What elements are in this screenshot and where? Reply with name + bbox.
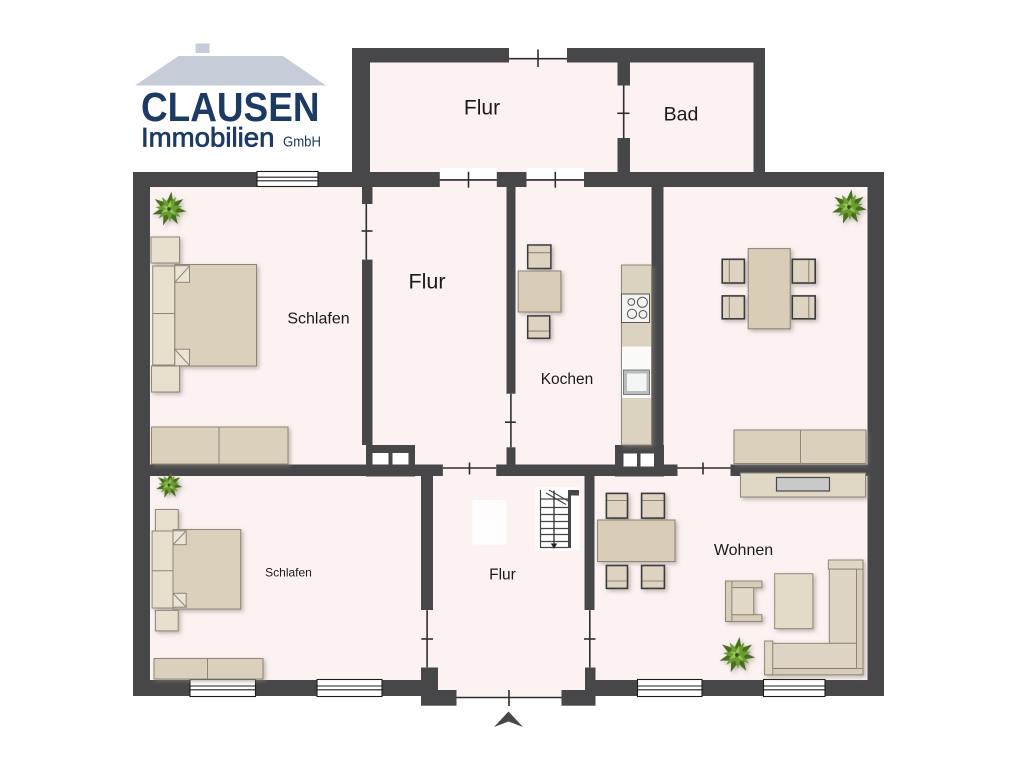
svg-text:Schlafen: Schlafen [287, 311, 349, 328]
svg-text:Flur: Flur [489, 567, 516, 584]
svg-text:Immobilien: Immobilien [141, 123, 275, 153]
svg-text:Schlafen: Schlafen [265, 566, 312, 580]
svg-text:Flur: Flur [408, 270, 445, 294]
svg-text:Kochen: Kochen [541, 371, 594, 388]
svg-text:Flur: Flur [464, 97, 500, 120]
svg-text:Bad: Bad [664, 104, 699, 126]
svg-text:Wohnen: Wohnen [714, 542, 773, 559]
svg-text:GmbH: GmbH [283, 135, 321, 151]
